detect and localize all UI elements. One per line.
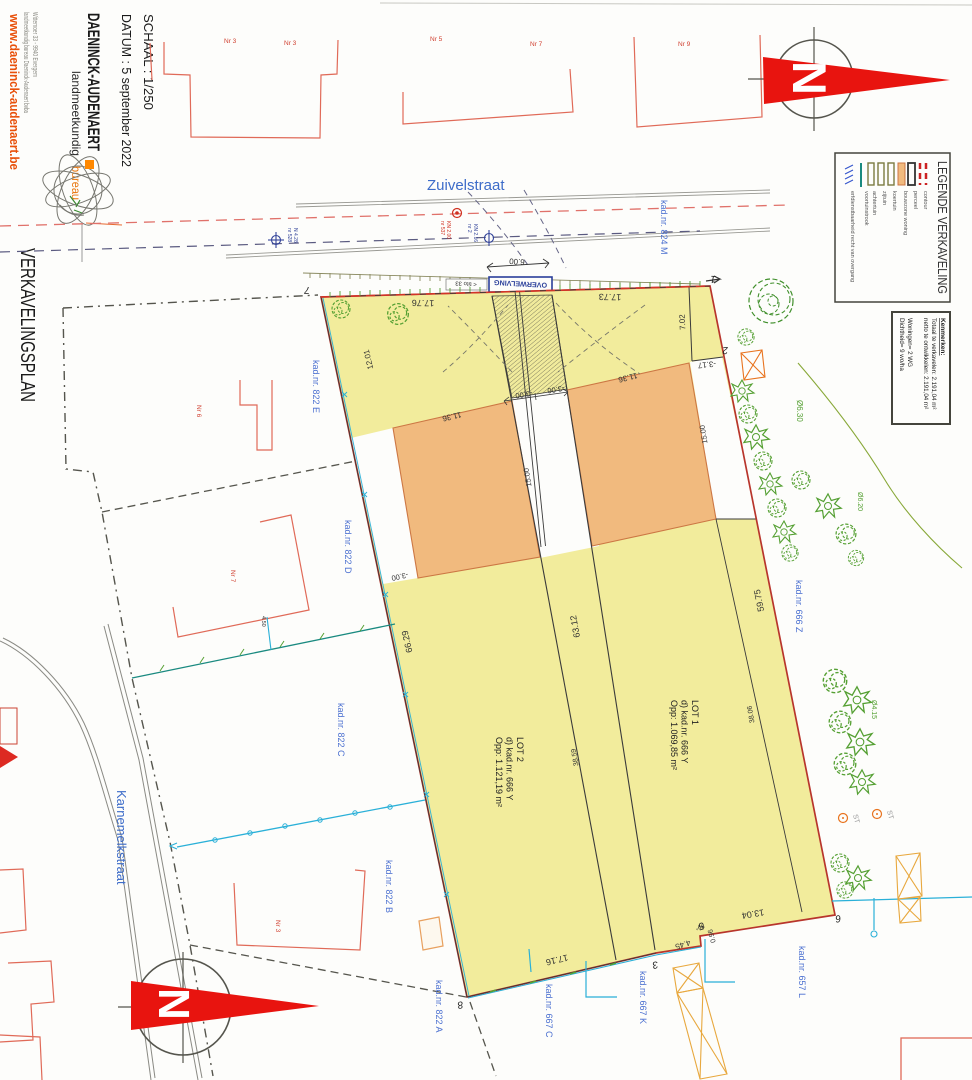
svg-text:Ø6.30: Ø6.30 xyxy=(795,400,804,422)
svg-text:Nr 5: Nr 5 xyxy=(430,36,443,43)
svg-text:koertuin: koertuin xyxy=(891,191,897,211)
svg-text:kad.nr. 822 E: kad.nr. 822 E xyxy=(311,360,321,413)
svg-text:Nr 7: Nr 7 xyxy=(229,570,236,583)
svg-text:1: 1 xyxy=(710,273,716,284)
svg-text:kad.nr. 667 K: kad.nr. 667 K xyxy=(638,971,648,1024)
svg-text:Nr 3: Nr 3 xyxy=(284,40,297,47)
svg-text:DAENINCK-AUDENAERT: DAENINCK-AUDENAERT xyxy=(84,13,102,151)
svg-text:Ø6.20: Ø6.20 xyxy=(856,492,863,511)
svg-text:kad.nr. 822 A: kad.nr. 822 A xyxy=(434,980,444,1033)
svg-text:Dichtheid= 9 wo/ha: Dichtheid= 9 wo/ha xyxy=(898,318,905,371)
svg-text:landmeetkundig bureau Daeninck: landmeetkundig bureau Daeninck-Audenaert… xyxy=(22,12,31,113)
svg-text:Karnemelkstraat: Karnemelkstraat xyxy=(114,790,129,885)
svg-text:6.00: 6.00 xyxy=(508,256,525,266)
svg-text:N: N xyxy=(149,988,198,1020)
svg-text:Zuivelstraat: Zuivelstraat xyxy=(427,177,505,194)
svg-text:17.73: 17.73 xyxy=(599,292,622,303)
svg-text:contour: contour xyxy=(922,191,928,210)
svg-text:Ø4.15: Ø4.15 xyxy=(870,700,877,719)
svg-text:Nr 6: Nr 6 xyxy=(195,405,202,418)
svg-text:landmeetkundig: landmeetkundig xyxy=(69,71,83,156)
svg-text:DATUM : 5 september 2022: DATUM : 5 september 2022 xyxy=(119,14,133,167)
svg-text:erfdienstbaarheid recht van ov: erfdienstbaarheid recht van overgang xyxy=(849,191,855,282)
svg-text:17.76: 17.76 xyxy=(412,298,435,309)
svg-text:Totaal te verkavelen: 2.191,0: Totaal te verkavelen: 2.191,04 m² xyxy=(930,318,937,410)
svg-text:Kenmerken:: Kenmerken: xyxy=(939,318,946,356)
svg-text:nr 2: nr 2 xyxy=(466,224,472,233)
svg-text:perceel: perceel xyxy=(912,191,918,209)
svg-text:Nr 3: Nr 3 xyxy=(274,920,281,933)
svg-text:kad.nr. 822 B: kad.nr. 822 B xyxy=(384,860,394,913)
svg-text:bouwzone woning: bouwzone woning xyxy=(902,191,908,235)
svg-text:kad.nr. 822 D: kad.nr. 822 D xyxy=(343,520,353,574)
svg-text:Wittemoer 33 - 9940 Evergem: Wittemoer 33 - 9940 Evergem xyxy=(31,12,40,77)
svg-text:N: N xyxy=(783,61,836,95)
svg-text:N 4.28: N 4.28 xyxy=(292,228,298,243)
svg-text:< tito 33: < tito 33 xyxy=(455,279,477,286)
svg-text:nr 537: nr 537 xyxy=(439,221,445,235)
svg-text:netto te ontwikkelen: 2.191,0: netto te ontwikkelen: 2.191,04 m² xyxy=(922,318,929,409)
svg-text:7: 7 xyxy=(304,284,310,295)
svg-text:zijtuin: zijtuin xyxy=(881,191,887,205)
svg-text:kad.nr. 822 C: kad.nr. 822 C xyxy=(336,703,346,757)
svg-text:7.02: 7.02 xyxy=(678,314,688,331)
svg-text:Nr 7: Nr 7 xyxy=(530,41,543,48)
svg-text:achtertuin: achtertuin xyxy=(871,191,877,215)
svg-text:LEGENDE VERKAVELING: LEGENDE VERKAVELING xyxy=(935,161,949,294)
svg-text:www.daeninck-audenaert.be: www.daeninck-audenaert.be xyxy=(7,13,21,170)
svg-text:kad.nr. 824 M: kad.nr. 824 M xyxy=(659,200,669,255)
svg-text:KN 2.00: KN 2.00 xyxy=(445,221,451,239)
svg-text:VERKAVELINGSPLAN: VERKAVELINGSPLAN xyxy=(16,248,38,402)
svg-text:Nr 3: Nr 3 xyxy=(224,38,237,45)
svg-text:nr 528: nr 528 xyxy=(286,228,292,242)
svg-text:kad.nr. 657 L: kad.nr. 657 L xyxy=(797,946,807,998)
svg-text:SCHAAL : 1/250: SCHAAL : 1/250 xyxy=(141,14,155,110)
svg-text:voortuinstrook: voortuinstrook xyxy=(863,191,869,226)
svg-text:bureau: bureau xyxy=(69,166,83,200)
svg-text:Woningen= 2 WG: Woningen= 2 WG xyxy=(906,318,913,367)
svg-text:Nr 9: Nr 9 xyxy=(678,41,691,48)
svg-text:kad.nr. 667 C: kad.nr. 667 C xyxy=(544,984,554,1038)
svg-text:KN 2.16: KN 2.16 xyxy=(472,224,478,242)
svg-text:kad.nr. 666 Z: kad.nr. 666 Z xyxy=(794,580,804,633)
svg-text:4.50: 4.50 xyxy=(260,616,266,627)
